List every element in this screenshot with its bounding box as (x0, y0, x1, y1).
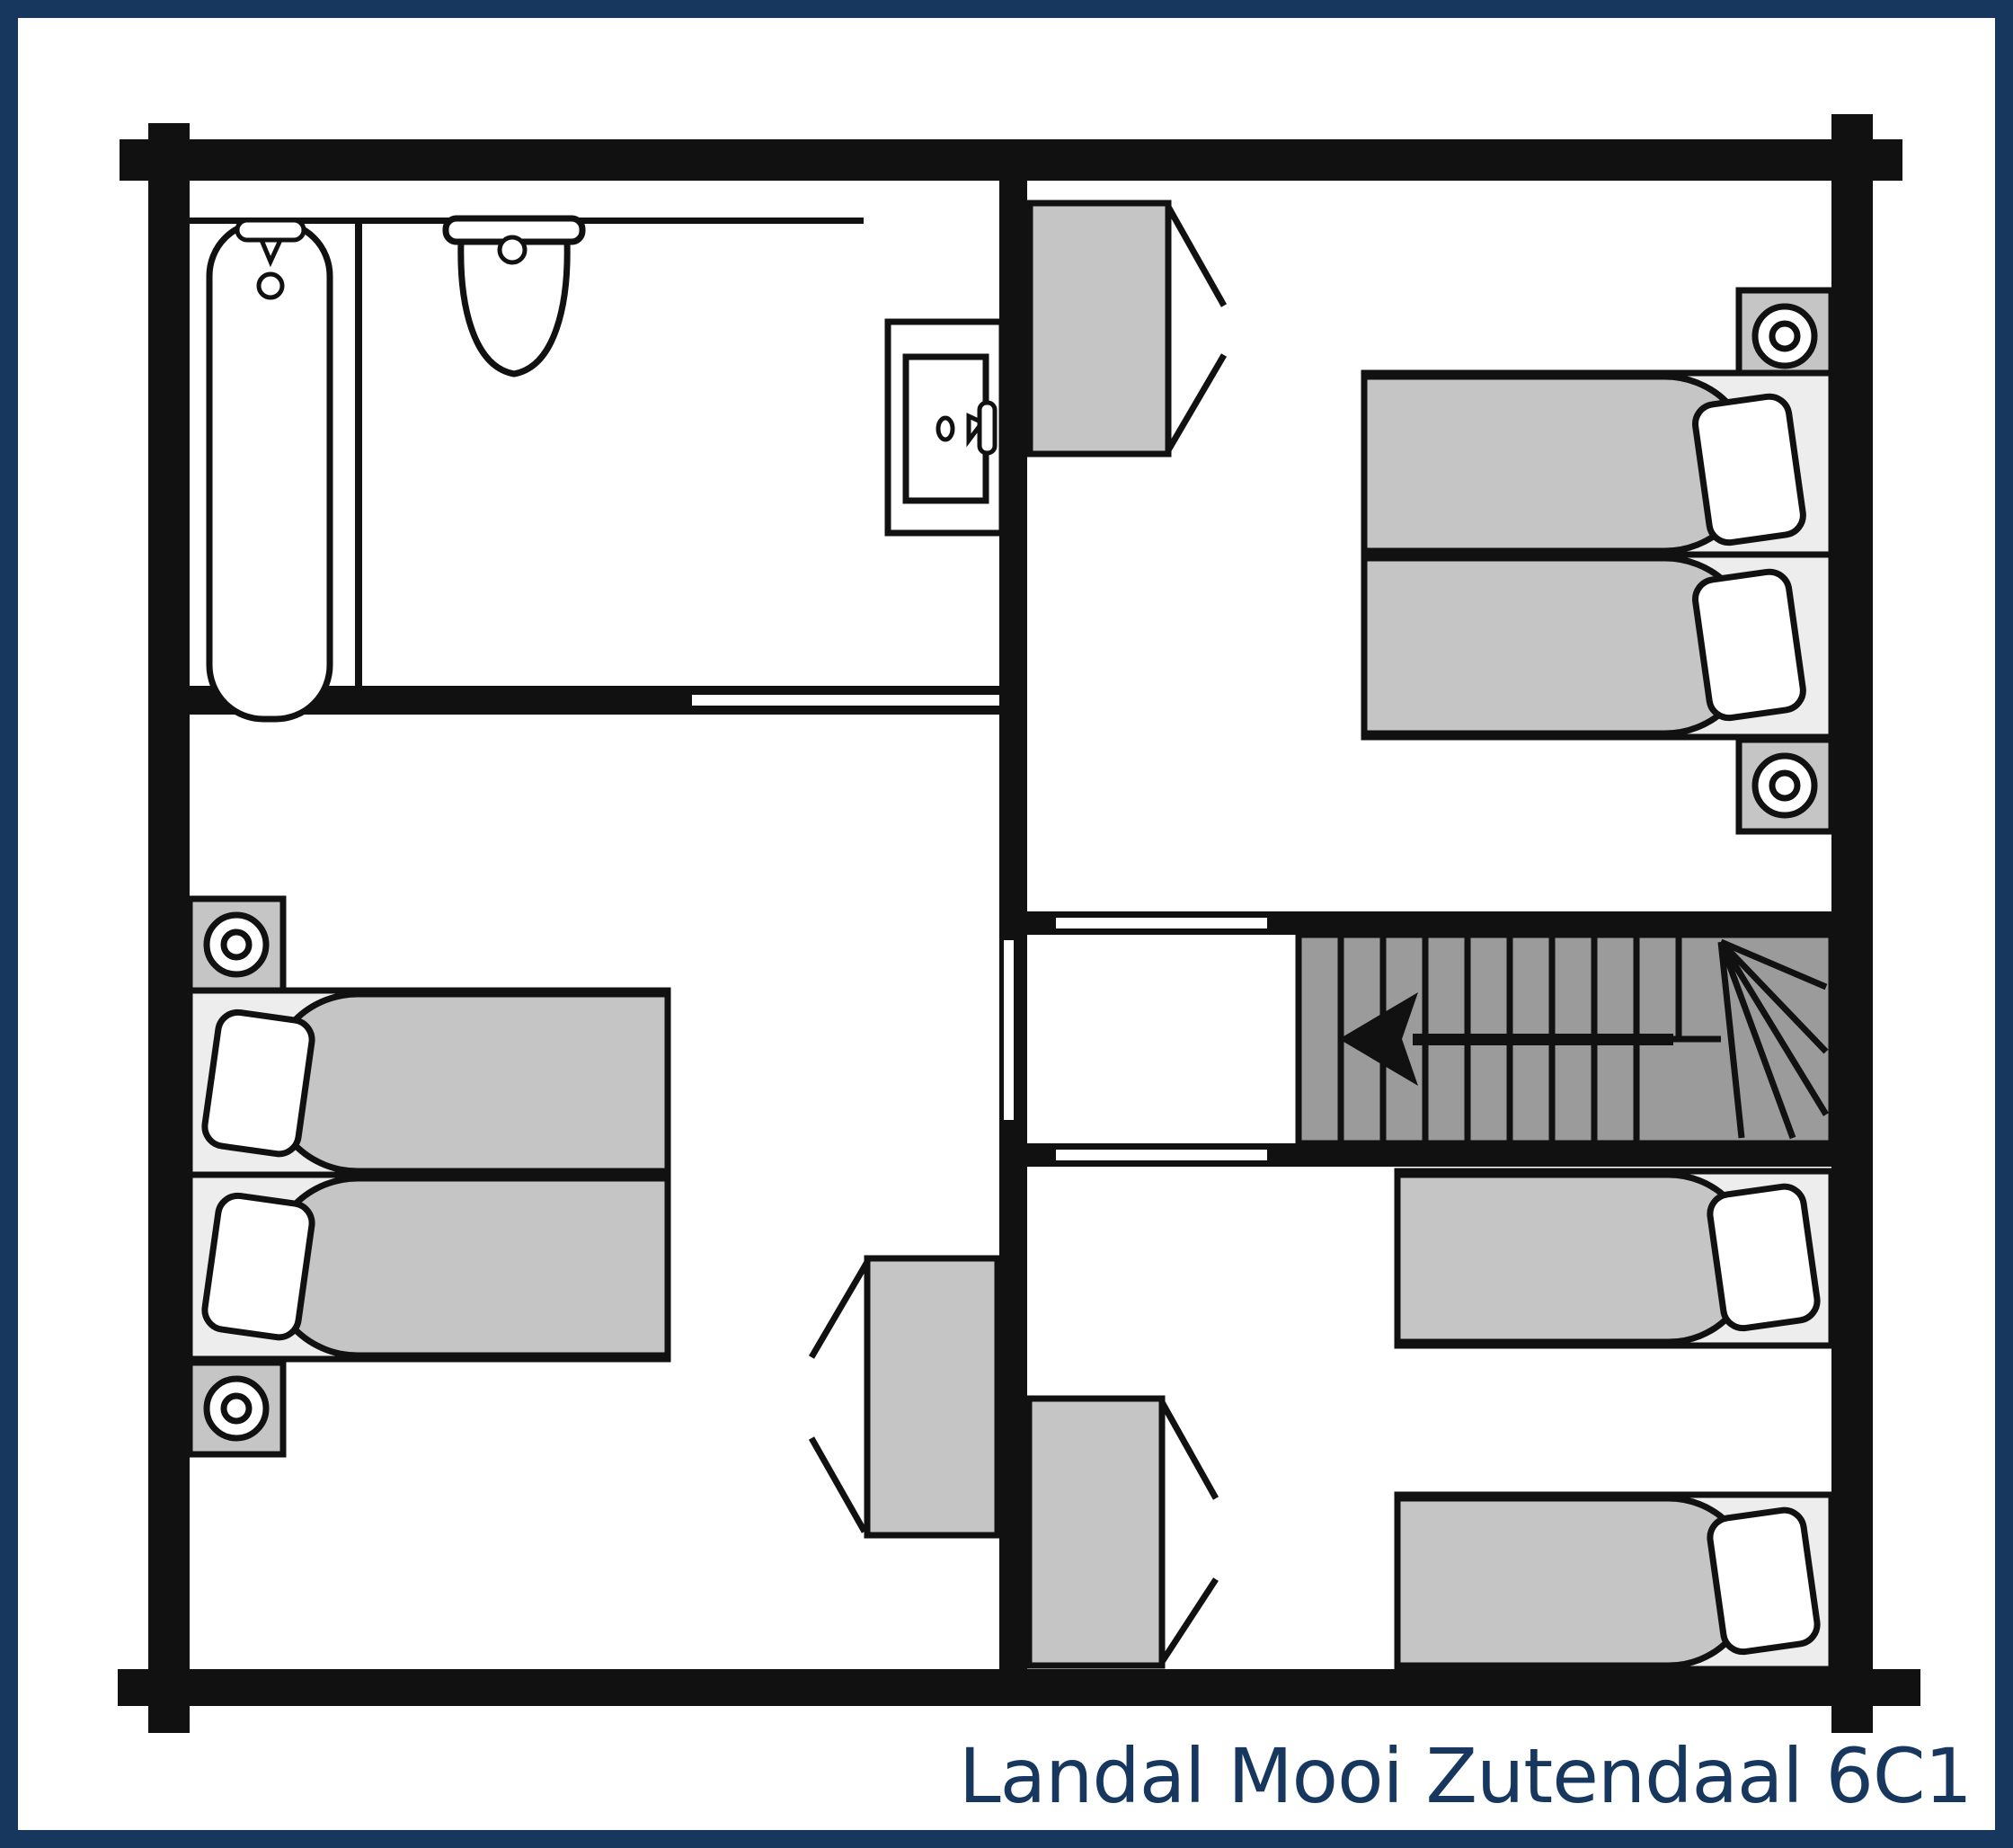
bedroom-top-right-door-opening (1056, 918, 1267, 928)
bathroom (209, 218, 1002, 719)
wardrobe-top-right (1030, 203, 1224, 454)
double-bed (190, 991, 668, 1359)
wardrobe-door-line (1168, 355, 1224, 450)
door-handle-bar (980, 403, 995, 453)
bathtub-partition (355, 223, 362, 686)
single-bed (1397, 1495, 1831, 1669)
pillow (1693, 569, 1806, 720)
staircase (1299, 935, 1831, 1143)
nightstand (1739, 740, 1831, 831)
pillow (1707, 1507, 1820, 1654)
door-knob-icon (938, 418, 953, 440)
bathroom-door-opening (692, 695, 999, 706)
wall-top (120, 139, 1902, 181)
wardrobe-bottom-right (1029, 1399, 1216, 1666)
bedroom-top-right (1030, 203, 1831, 831)
wardrobe-door-line (1168, 207, 1224, 306)
wardrobe-door-line (811, 1438, 865, 1532)
nightstand (190, 1363, 283, 1454)
double-bed (1364, 373, 1831, 737)
floorplan-drawing (0, 0, 2013, 1848)
wardrobe-door-line (811, 1262, 867, 1357)
page-title: Landal Mooi Zutendaal 6C1 (959, 1738, 1972, 1814)
bathtub (209, 220, 330, 719)
duvet (1397, 1498, 1752, 1666)
floorplan-page: Landal Mooi Zutendaal 6C1 (0, 0, 2013, 1848)
bedroom-left-door-opening (1004, 940, 1014, 1120)
toilet-flush-icon (500, 237, 525, 262)
nightstand (190, 899, 283, 991)
toilet (446, 218, 582, 374)
pillow (202, 1009, 315, 1156)
wall-left (148, 123, 190, 1733)
door-panel (888, 322, 1002, 533)
pillow (202, 1193, 315, 1339)
wall-bottom (118, 1669, 1920, 1706)
wardrobe-door-line (1162, 1402, 1216, 1498)
bedroom-left (190, 899, 998, 1535)
nightstand (1739, 290, 1831, 382)
bedroom-bottom-right-door-opening (1056, 1150, 1267, 1160)
pillow (1693, 394, 1806, 545)
pillow (1707, 1184, 1820, 1330)
wall-right (1831, 114, 1873, 1733)
single-bed (1397, 1171, 1831, 1346)
duvet (1397, 1175, 1752, 1342)
wardrobe-left-room (811, 1258, 998, 1535)
duvet (269, 994, 668, 1171)
bedroom-bottom-right (1029, 1171, 1831, 1669)
duvet (1364, 558, 1753, 733)
duvet (1364, 377, 1752, 551)
wardrobe-door-line (1162, 1579, 1216, 1662)
duvet (269, 1178, 668, 1355)
